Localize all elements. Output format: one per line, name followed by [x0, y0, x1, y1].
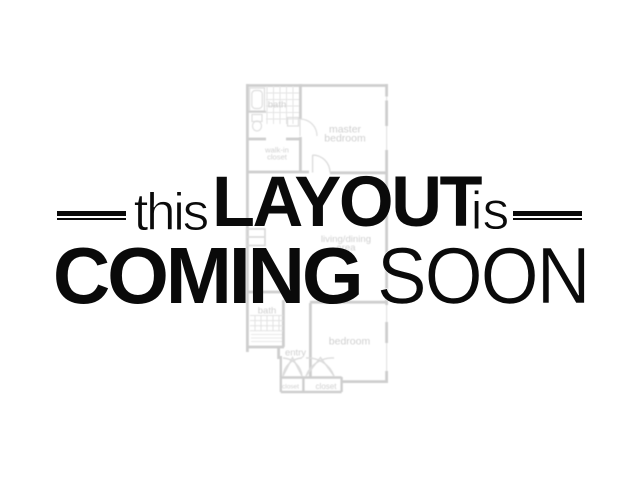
svg-text:entry: entry	[285, 348, 306, 359]
svg-text:bath: bath	[268, 100, 287, 111]
svg-text:closet: closet	[316, 382, 338, 391]
svg-text:closet: closet	[282, 384, 299, 391]
svg-text:bedroom: bedroom	[324, 133, 366, 145]
svg-text:bedroom: bedroom	[329, 336, 371, 348]
svg-text:closet: closet	[267, 153, 288, 162]
